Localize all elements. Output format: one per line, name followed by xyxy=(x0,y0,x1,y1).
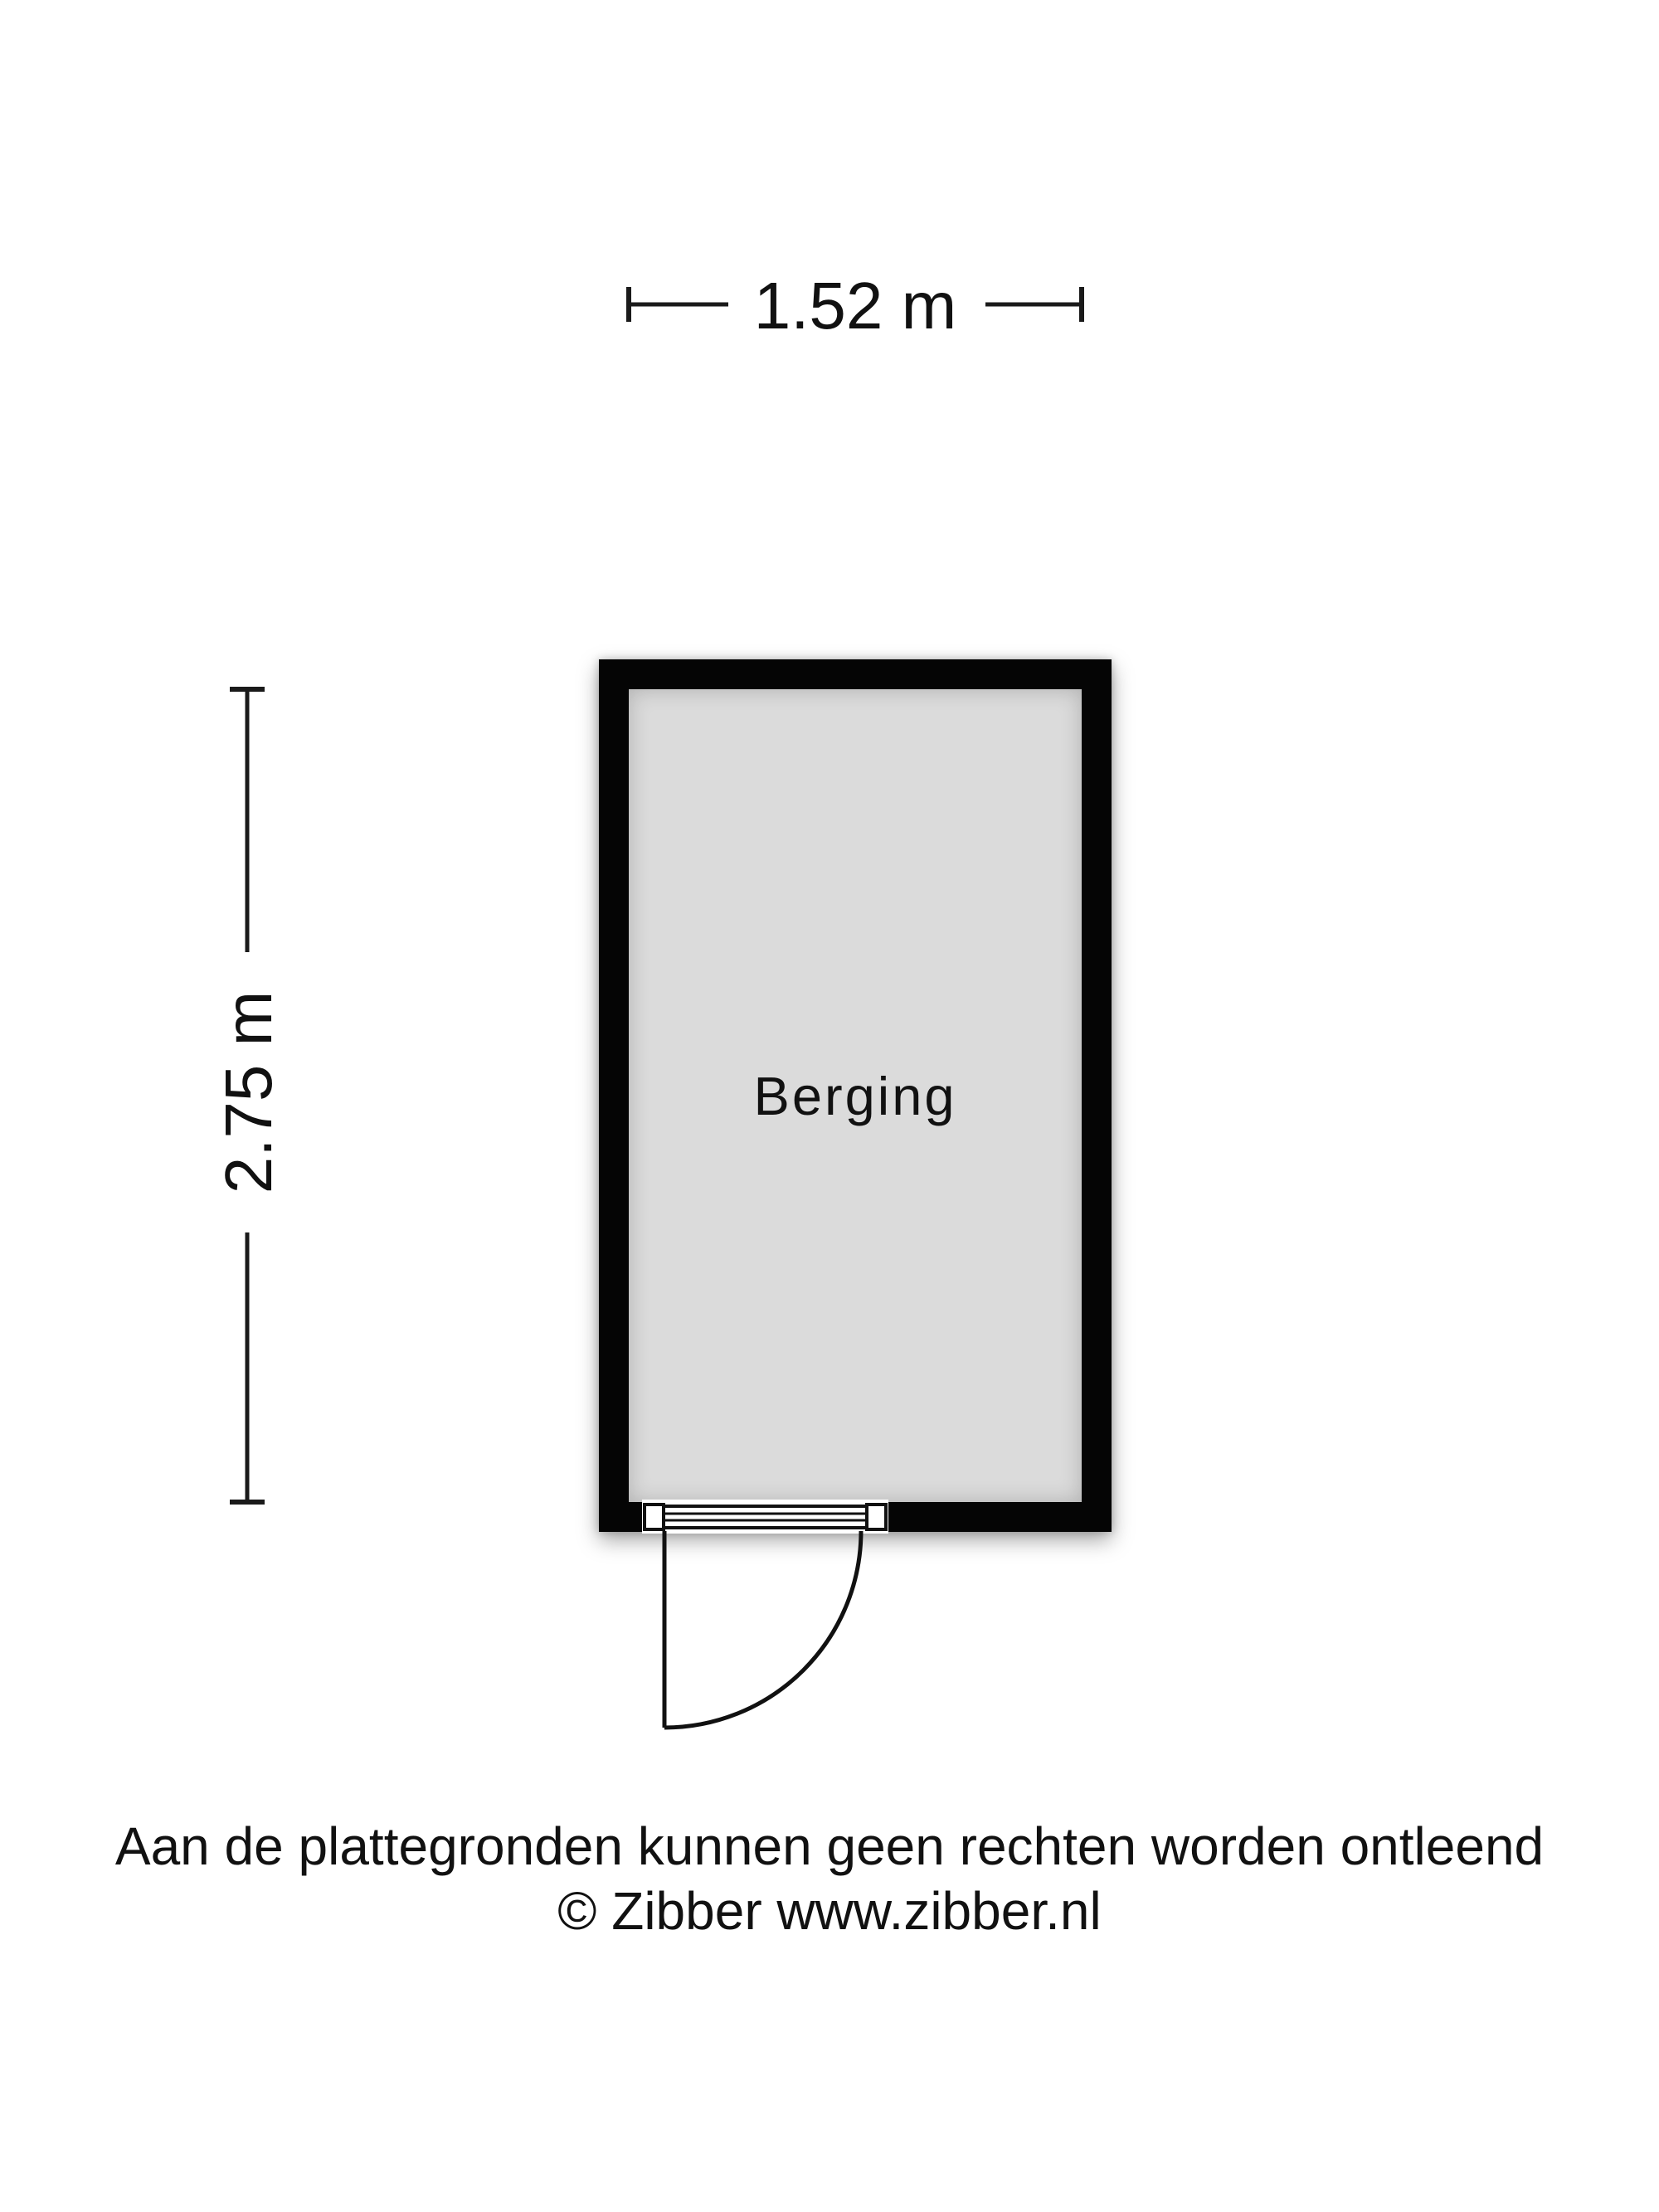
height-dimension-label: 2.75 m xyxy=(212,991,285,1194)
disclaimer-text: Aan de plattegronden kunnen geen rechten… xyxy=(0,1816,1659,1878)
height-dimension: 2.75 m xyxy=(206,689,289,1502)
width-dimension: 1.52 m xyxy=(629,262,1082,345)
door-swing-arc xyxy=(664,1531,861,1728)
width-dimension-label: 1.52 m xyxy=(754,269,957,343)
copyright-text: © Zibber www.zibber.nl xyxy=(0,1881,1659,1942)
door-jamb-right xyxy=(867,1505,886,1529)
floorplan-overlay: 1.52 m 2.75 m xyxy=(0,0,1659,2212)
door xyxy=(642,1500,888,1728)
floorplan-page: Berging 1.52 m 2.75 m xyxy=(0,0,1659,2212)
door-threshold xyxy=(664,1506,867,1528)
door-jamb-left xyxy=(645,1505,664,1529)
